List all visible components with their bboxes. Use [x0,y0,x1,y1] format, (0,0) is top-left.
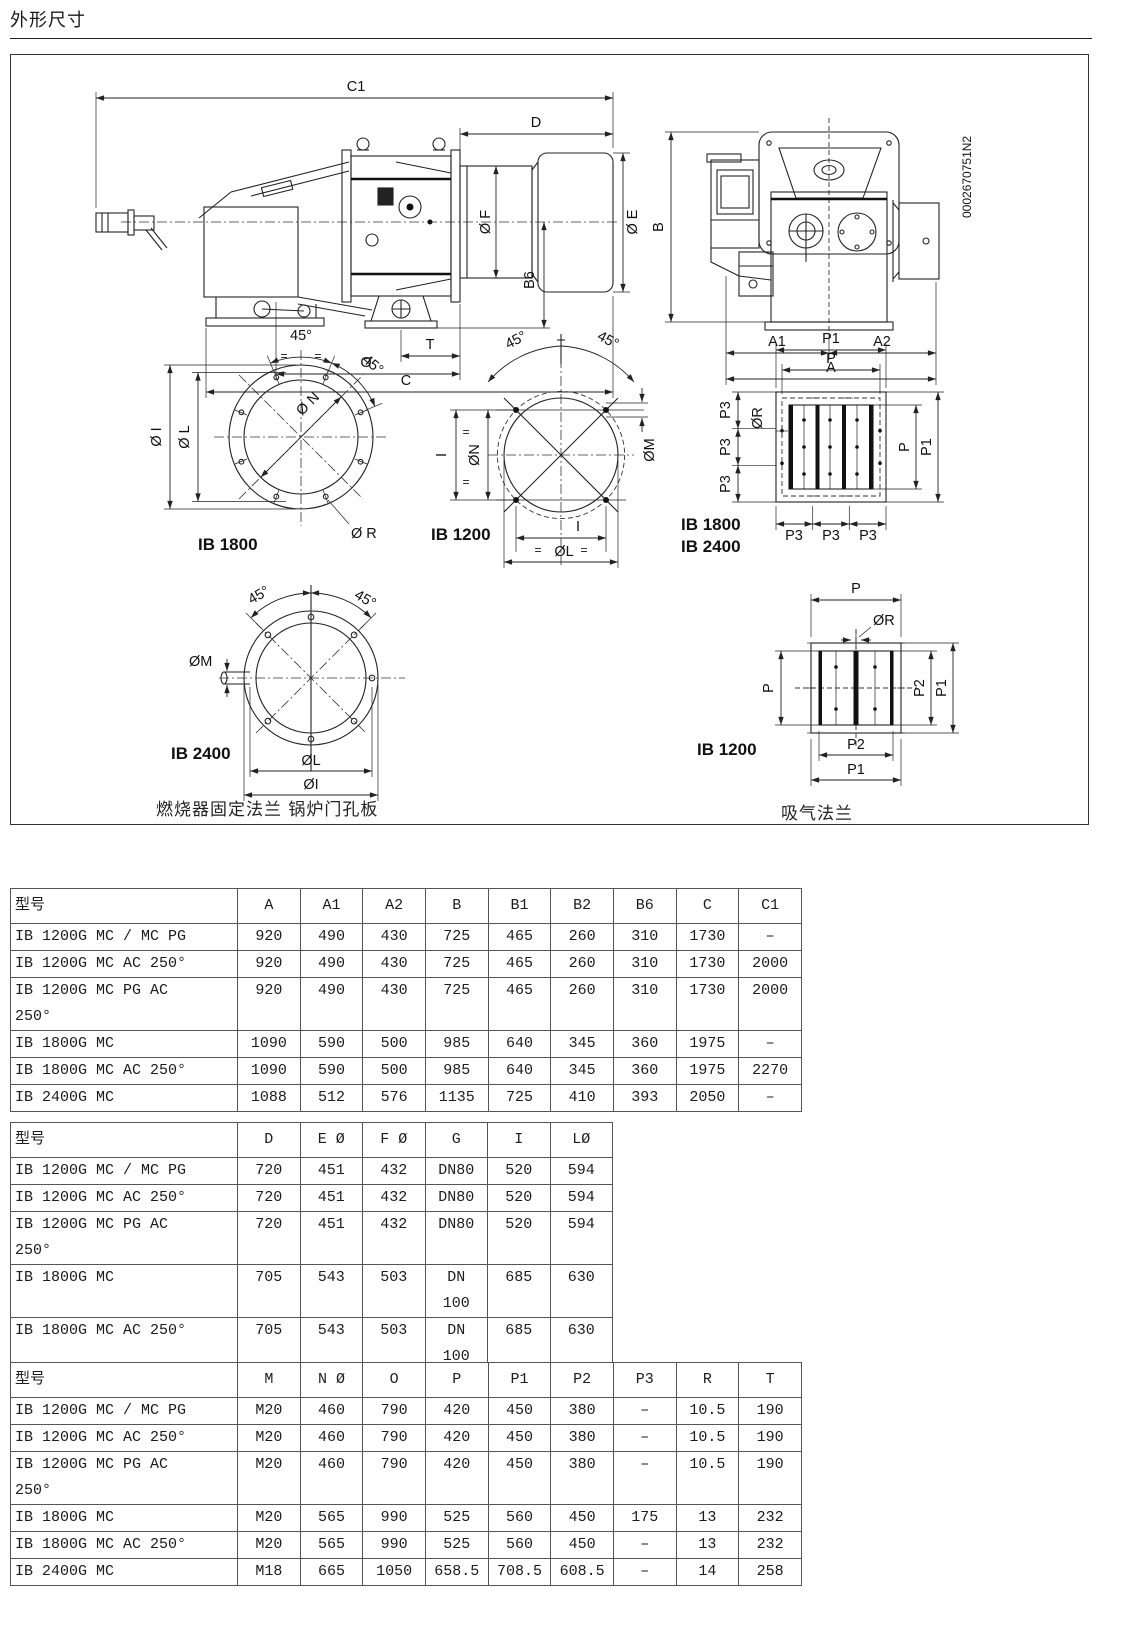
dim-label-p3: P3 [718,401,734,419]
fixing-flange-ib2400: 45° 45° ØM ØL ØI IB 2400 [161,565,461,815]
fixing-flange-ib1200: 45° 45° I = = ØN ØM I = = ØL IB 1200 [426,300,686,572]
suction-small-title: IB 1200 [697,740,757,759]
value-cell: 1050 [363,1559,426,1586]
fixing-flange-ib1800: 45° 45° = = Ø I Ø L Ø N Ø R IB 1800 [136,300,446,565]
value-cell: 430 [363,924,426,951]
value-cell: 658.5 [425,1559,488,1586]
value-cell: 13 [676,1532,739,1559]
value-cell: 432 [363,1185,426,1212]
value-cell: M20 [238,1452,301,1505]
value-cell: 590 [300,1058,363,1085]
value-cell: 310 [613,978,676,1031]
value-cell: 920 [238,951,301,978]
table-row: IB 1200G MC PG AC 250°M20460790420450380… [11,1452,802,1505]
value-cell: 1730 [676,978,739,1031]
value-cell: 720 [238,1158,301,1185]
value-cell: 1975 [676,1058,739,1085]
dim-label-d: D [531,115,541,131]
dim-label-b: B [651,222,667,232]
table-c-body: IB 1200G MC / MC PGM20460790420450380–10… [11,1398,802,1586]
equal-mark: = [314,349,321,363]
table-row: IB 1200G MC PG AC 250°720451432DN8052059… [11,1212,613,1265]
value-cell: 503 [363,1265,426,1318]
value-cell: 725 [488,1085,551,1112]
header-model: 型号 [11,889,238,924]
dimension-table-a: 型号AA1A2BB1B2B6CC1 IB 1200G MC / MC PG920… [10,888,802,1112]
value-cell: 450 [488,1425,551,1452]
dim-label-ol: Ø L [177,425,193,448]
value-cell: M18 [238,1559,301,1586]
model-cell: IB 2400G MC [11,1559,238,1586]
model-cell: IB 2400G MC [11,1085,238,1112]
value-cell: 590 [300,1031,363,1058]
equal-mark: = [580,543,587,557]
header-B2: B2 [551,889,614,924]
value-cell: 985 [425,1031,488,1058]
table-row: IB 1200G MC AC 250°720451432DN80520594 [11,1185,613,1212]
value-cell: 990 [363,1505,426,1532]
value-cell: – [739,1031,802,1058]
table-a-body: IB 1200G MC / MC PG920490430725465260310… [11,924,802,1112]
equal-mark: = [280,349,287,363]
value-cell: 725 [425,978,488,1031]
value-cell: 2000 [739,978,802,1031]
header-P: P [425,1363,488,1398]
value-cell: 525 [425,1505,488,1532]
value-cell: 432 [363,1158,426,1185]
value-cell: 520 [488,1185,551,1212]
flange-ib2400-title: IB 2400 [171,744,231,763]
value-cell: 2270 [739,1058,802,1085]
table-row: IB 2400G MCM186651050658.5708.5608.5–142… [11,1559,802,1586]
dim-label-p1-bottom: P1 [847,762,865,778]
value-cell: 451 [300,1158,363,1185]
dim-label-or: ØR [750,407,766,429]
value-cell: 465 [488,924,551,951]
equal-mark: = [534,543,541,557]
model-cell: IB 1200G MC AC 250° [11,1185,238,1212]
table-row: IB 1200G MC / MC PG720451432DN80520594 [11,1158,613,1185]
dim-label-p1-right: P1 [919,438,935,456]
value-cell: DN 100 [425,1265,488,1318]
value-cell: 708.5 [488,1559,551,1586]
header-model: 型号 [11,1123,238,1158]
value-cell: 594 [550,1212,613,1265]
value-cell: 10.5 [676,1425,739,1452]
value-cell: 1730 [676,924,739,951]
value-cell: 450 [488,1398,551,1425]
value-cell: – [739,924,802,951]
model-cell: IB 1200G MC / MC PG [11,1398,238,1425]
header-O: O [363,1363,426,1398]
value-cell: 990 [363,1532,426,1559]
value-cell: 1135 [425,1085,488,1112]
header-N Ø: N Ø [300,1363,363,1398]
header-row: 型号DE ØF ØGILØ [11,1123,613,1158]
header-A2: A2 [363,889,426,924]
model-cell: IB 1200G MC / MC PG [11,924,238,951]
value-cell: 410 [551,1085,614,1112]
value-cell: 260 [551,951,614,978]
dim-label-i-bottom: I [576,519,580,535]
value-cell: 310 [613,951,676,978]
header-E Ø: E Ø [300,1123,363,1158]
value-cell: – [613,1425,676,1452]
value-cell: 360 [613,1058,676,1085]
header-I: I [488,1123,551,1158]
header-LØ: LØ [550,1123,613,1158]
dimension-diagram: C1 D Ø F Ø E B6 T O C [10,54,1089,825]
value-cell: 190 [739,1398,802,1425]
header-T: T [739,1363,802,1398]
dim-label-p3: P3 [859,528,877,544]
value-cell: 576 [363,1085,426,1112]
dim-label-p2-right: P2 [912,679,928,697]
model-cell: IB 1800G MC AC 250° [11,1532,238,1559]
dim-label-e: Ø E [625,209,641,234]
table-row: IB 1200G MC PG AC 250°920490430725465260… [11,978,802,1031]
value-cell: 451 [300,1185,363,1212]
value-cell: 190 [739,1452,802,1505]
table-row: IB 1200G MC AC 250°920490430725465260310… [11,951,802,978]
dim-label-p-top: P [851,581,861,597]
table-row: IB 1200G MC / MC PG920490430725465260310… [11,924,802,951]
value-cell: 258 [739,1559,802,1586]
header-F Ø: F Ø [363,1123,426,1158]
value-cell: 565 [300,1532,363,1559]
dim-label-p3: P3 [718,438,734,456]
header-C: C [676,889,739,924]
value-cell: M20 [238,1532,301,1559]
value-cell: 720 [238,1212,301,1265]
dim-label-p1-right: P1 [934,679,950,697]
value-cell: 460 [300,1425,363,1452]
dim-label-ol: ØL [554,544,573,560]
value-cell: 560 [488,1532,551,1559]
table-row: IB 1800G MC AC 250°M20565990525560450–13… [11,1532,802,1559]
value-cell: M20 [238,1425,301,1452]
value-cell: 451 [300,1212,363,1265]
flange-ib2400-geometry [219,585,405,771]
value-cell: 10.5 [676,1398,739,1425]
dim-label-on: Ø N [293,389,323,419]
value-cell: 460 [300,1398,363,1425]
angle-45-top: 45° [290,328,312,344]
value-cell: 630 [550,1265,613,1318]
value-cell: 175 [613,1505,676,1532]
header-G: G [425,1123,488,1158]
value-cell: 232 [739,1532,802,1559]
dim-label-c1: C1 [347,79,366,95]
value-cell: 1088 [238,1085,301,1112]
dim-label-p-right: P [897,442,913,452]
suction-flange-ib1200: P ØR P P2 P1 P2 P1 IB 1200 [691,543,981,788]
dim-label-or: Ø R [351,526,377,542]
value-cell: 190 [739,1425,802,1452]
header-B: B [425,889,488,924]
table-row: IB 1200G MC AC 250°M20460790420450380–10… [11,1425,802,1452]
model-cell: IB 1800G MC [11,1265,238,1318]
page-title: 外形尺寸 [10,6,86,32]
dim-label-p1-top: P1 [822,331,840,347]
value-cell: 790 [363,1452,426,1505]
value-cell: 432 [363,1212,426,1265]
value-cell: 725 [425,951,488,978]
value-cell: 2050 [676,1085,739,1112]
flange-ib1800-dimensions: 45° 45° = = Ø I Ø L Ø N Ø R IB 1800 [149,328,386,554]
value-cell: – [613,1532,676,1559]
model-cell: IB 1800G MC [11,1505,238,1532]
value-cell: 460 [300,1452,363,1505]
suction-big-title-1: IB 1800 [681,515,741,534]
title-rule [10,38,1092,39]
value-cell: 640 [488,1031,551,1058]
table-row: IB 1800G MC10905905009856403453601975– [11,1031,802,1058]
header-P3: P3 [613,1363,676,1398]
flange-ib1200-dimensions: 45° 45° I = = ØN ØM I = = ØL IB 1200 [431,328,658,568]
dim-label-ol: ØL [301,753,320,769]
model-cell: IB 1800G MC [11,1031,238,1058]
caption-suction-flange: 吸气法兰 [781,799,853,824]
value-cell: 430 [363,951,426,978]
value-cell: 310 [613,924,676,951]
value-cell: 525 [425,1532,488,1559]
header-R: R [676,1363,739,1398]
value-cell: 565 [300,1505,363,1532]
caption-fixing-flange: 燃烧器固定法兰 锅炉门孔板 [156,795,378,820]
value-cell: 14 [676,1559,739,1586]
value-cell: 685 [488,1265,551,1318]
dim-label-b6: B6 [522,271,538,289]
table-row: IB 1800G MC705543503DN 100685630 [11,1265,613,1318]
dim-label-om: ØM [189,654,212,670]
table-b-head: 型号DE ØF ØGILØ [11,1123,613,1158]
equal-mark: = [462,425,469,439]
suction-big-dimensions: P1 P P3 P3 P3 ØR P P1 [681,331,944,556]
value-cell: 420 [425,1452,488,1505]
value-cell: 490 [300,924,363,951]
flange-ib1800-title: IB 1800 [198,535,258,554]
header-A: A [238,889,301,924]
table-c-head: 型号MN ØOPP1P2P3RT [11,1363,802,1398]
table-row: IB 1800G MC AC 250°109059050098564034536… [11,1058,802,1085]
dim-label-p-left: P [761,683,777,693]
suction-flange-ib1800-ib2400: P1 P P3 P3 P3 ØR P P1 [676,330,966,560]
dim-label-or: ØR [873,613,895,629]
value-cell: 450 [551,1505,614,1532]
value-cell: 1975 [676,1031,739,1058]
suction-small-dimensions: P ØR P P2 P1 P2 P1 IB 1200 [697,581,959,786]
value-cell: – [739,1085,802,1112]
value-cell: 725 [425,924,488,951]
value-cell: 260 [551,924,614,951]
part-code: 0002670751N2 [960,136,974,218]
dim-label-p3: P3 [718,475,734,493]
value-cell: 10.5 [676,1452,739,1505]
value-cell: 560 [488,1505,551,1532]
value-cell: 430 [363,978,426,1031]
value-cell: 520 [488,1212,551,1265]
model-cell: IB 1200G MC PG AC 250° [11,1452,238,1505]
value-cell: 450 [488,1452,551,1505]
value-cell: 512 [300,1085,363,1112]
value-cell: 985 [425,1058,488,1085]
value-cell: 380 [551,1452,614,1505]
value-cell: 920 [238,978,301,1031]
value-cell: 2000 [739,951,802,978]
value-cell: DN80 [425,1212,488,1265]
value-cell: M20 [238,1398,301,1425]
value-cell: 720 [238,1185,301,1212]
model-cell: IB 1800G MC AC 250° [11,1058,238,1085]
header-D: D [238,1123,301,1158]
value-cell: 665 [300,1559,363,1586]
header-row: 型号MN ØOPP1P2P3RT [11,1363,802,1398]
value-cell: 490 [300,951,363,978]
value-cell: 380 [551,1398,614,1425]
value-cell: 705 [238,1265,301,1318]
value-cell: 360 [613,1031,676,1058]
value-cell: DN80 [425,1185,488,1212]
rear-view-body [707,118,939,338]
model-cell: IB 1200G MC / MC PG [11,1158,238,1185]
model-cell: IB 1200G MC AC 250° [11,1425,238,1452]
dim-label-p3: P3 [822,528,840,544]
header-B1: B1 [488,889,551,924]
value-cell: 420 [425,1425,488,1452]
value-cell: 594 [550,1158,613,1185]
dim-label-p-top: P [826,351,836,367]
angle-45-right: 45° [352,587,379,612]
flange-ib1800-geometry [214,350,388,526]
angle-45-right: 45° [594,328,621,352]
dim-label-i-left: I [434,453,450,457]
model-cell: IB 1200G MC PG AC 250° [11,978,238,1031]
table-row: IB 1800G MCM2056599052556045017513232 [11,1505,802,1532]
value-cell: 543 [300,1265,363,1318]
dim-label-p3: P3 [785,528,803,544]
value-cell: 920 [238,924,301,951]
dim-label-oi: ØI [303,777,318,793]
header-P1: P1 [488,1363,551,1398]
dim-label-om: ØM [642,438,658,461]
header-B6: B6 [613,889,676,924]
value-cell: 345 [551,1058,614,1085]
value-cell: DN80 [425,1158,488,1185]
value-cell: 232 [739,1505,802,1532]
value-cell: – [613,1452,676,1505]
value-cell: 393 [613,1085,676,1112]
value-cell: – [613,1398,676,1425]
value-cell: 490 [300,978,363,1031]
suction-big-geometry [776,392,886,502]
table-row: IB 2400G MC108851257611357254103932050– [11,1085,802,1112]
header-row: 型号AA1A2BB1B2B6CC1 [11,889,802,924]
angle-45-left: 45° [503,328,530,352]
value-cell: 465 [488,978,551,1031]
value-cell: 500 [363,1031,426,1058]
value-cell: 594 [550,1185,613,1212]
value-cell: 1090 [238,1031,301,1058]
value-cell: 465 [488,951,551,978]
dim-label-p2-bottom: P2 [847,737,865,753]
dim-label-on: ØN [467,444,483,466]
value-cell: 1090 [238,1058,301,1085]
value-cell: 1730 [676,951,739,978]
model-cell: IB 1200G MC PG AC 250° [11,1212,238,1265]
header-A1: A1 [300,889,363,924]
flange-ib2400-dimensions: 45° 45° ØM ØL ØI IB 2400 [171,583,378,801]
dim-label-f: Ø F [478,210,494,234]
angle-45-right: 45° [359,352,386,378]
header-M: M [238,1363,301,1398]
header-P2: P2 [551,1363,614,1398]
table-row: IB 1200G MC / MC PGM20460790420450380–10… [11,1398,802,1425]
value-cell: 450 [551,1532,614,1559]
suction-small-geometry [795,629,917,747]
value-cell: M20 [238,1505,301,1532]
value-cell: – [613,1559,676,1586]
value-cell: 13 [676,1505,739,1532]
flange-ib1200-title: IB 1200 [431,525,491,544]
dim-label-oi: Ø I [149,427,165,446]
equal-mark: = [462,475,469,489]
value-cell: 420 [425,1398,488,1425]
value-cell: 520 [488,1158,551,1185]
value-cell: 500 [363,1058,426,1085]
header-C1: C1 [739,889,802,924]
value-cell: 608.5 [551,1559,614,1586]
value-cell: 345 [551,1031,614,1058]
value-cell: 380 [551,1425,614,1452]
header-model: 型号 [11,1363,238,1398]
value-cell: 790 [363,1425,426,1452]
value-cell: 640 [488,1058,551,1085]
model-cell: IB 1200G MC AC 250° [11,951,238,978]
dimension-table-c: 型号MN ØOPP1P2P3RT IB 1200G MC / MC PGM204… [10,1362,802,1586]
value-cell: 260 [551,978,614,1031]
value-cell: 790 [363,1398,426,1425]
table-a-head: 型号AA1A2BB1B2B6CC1 [11,889,802,924]
